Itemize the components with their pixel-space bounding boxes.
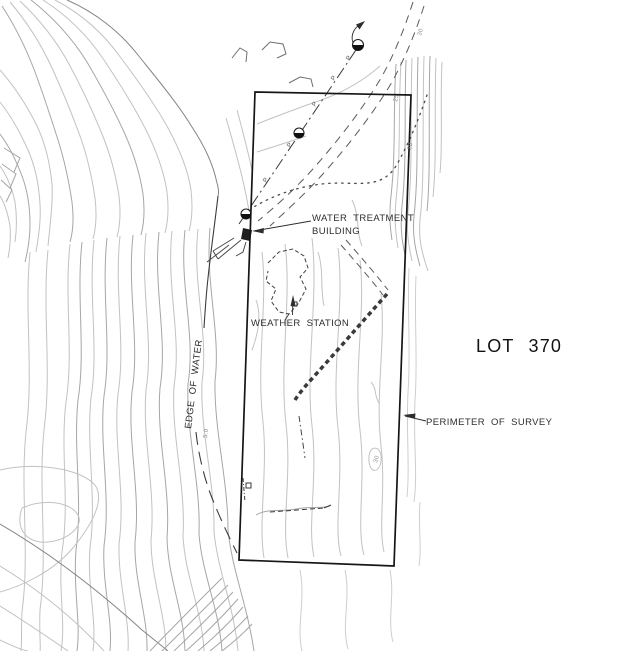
pole-mark: P	[286, 142, 294, 150]
contour-elevation-label: 30	[417, 28, 425, 37]
map-labels: WATER TREATMENT BUILDING WEATHER STATION…	[183, 213, 562, 429]
dotted-line	[252, 95, 427, 208]
contour-field-left	[0, 0, 254, 651]
site-plan-drawing: P P P P P	[0, 0, 640, 651]
arrowhead	[252, 228, 264, 234]
weather-station-label: WEATHER STATION	[251, 318, 349, 329]
stream-line	[295, 240, 388, 458]
lot-number-label: LOT 370	[476, 336, 562, 356]
perimeter-of-survey-label: PERIMETER OF SURVEY	[426, 417, 553, 428]
survey-perimeter	[239, 92, 411, 566]
flow-arrowhead	[356, 21, 365, 30]
edge-of-water-line	[196, 196, 237, 553]
ridge-fragments	[232, 42, 313, 87]
water-treatment-label-line1: WATER TREATMENT	[312, 213, 414, 224]
arrowhead	[291, 295, 296, 306]
utility-pole-icon	[241, 209, 251, 219]
survey-map-canvas: P P P P P	[0, 0, 640, 651]
overhead-pole-line: P P P P P	[239, 21, 365, 224]
arrowhead	[403, 414, 416, 419]
contour-elevation-label: 5.0	[203, 428, 210, 438]
contour-elevation-label: 30	[373, 455, 381, 464]
pole-mark: P	[330, 75, 338, 83]
utility-pole-icon	[294, 128, 304, 138]
chain-line	[295, 294, 387, 400]
pole-mark: P	[262, 177, 270, 185]
contour-elevation-label: 30	[407, 142, 414, 151]
utility-pole-icon	[353, 40, 364, 51]
water-treatment-label-line2: BUILDING	[312, 226, 360, 237]
